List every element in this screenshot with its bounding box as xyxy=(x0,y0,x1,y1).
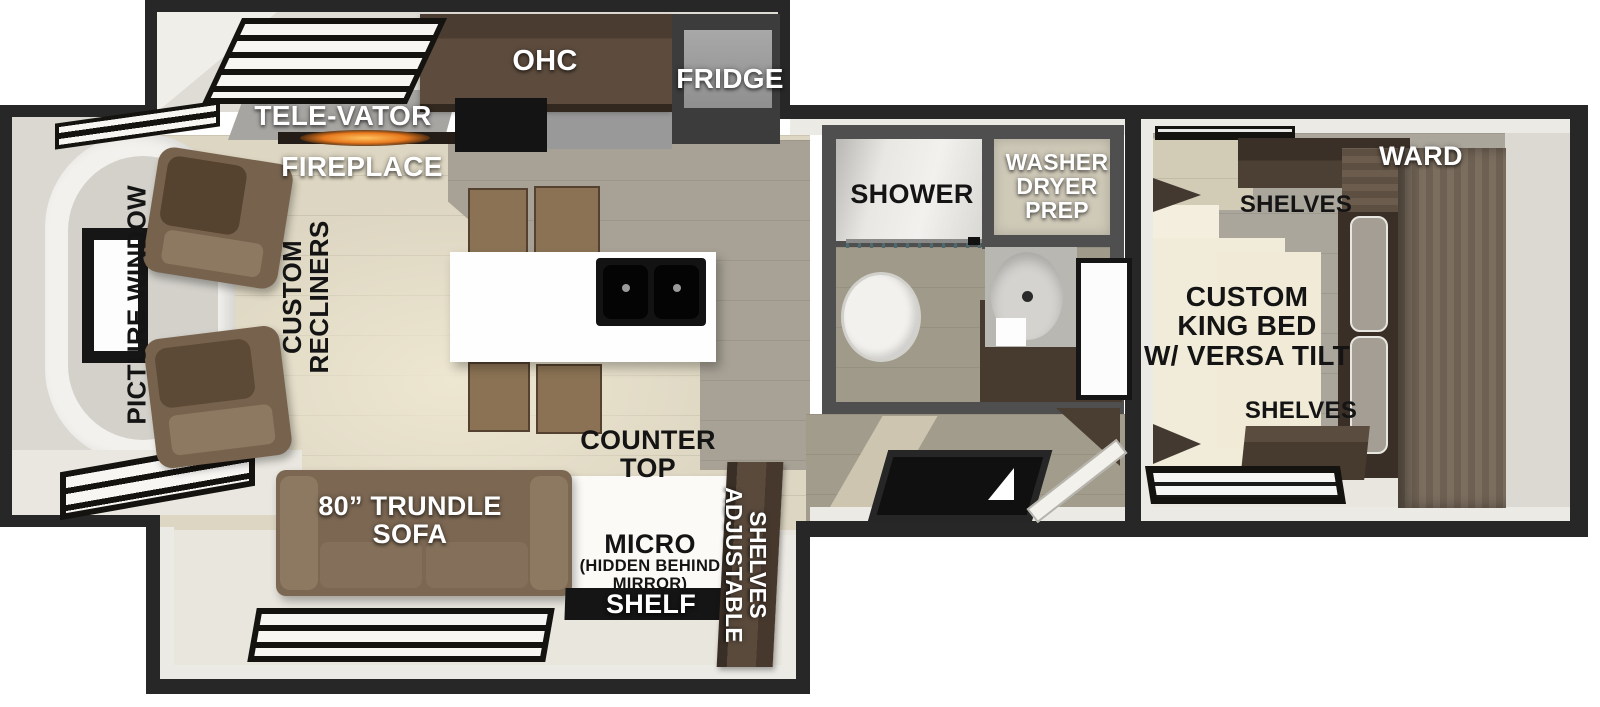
island-stool-1 xyxy=(468,188,528,256)
ohc-label: OHC xyxy=(455,46,635,76)
wardrobe-column xyxy=(1398,148,1506,508)
entry-step-well xyxy=(868,450,1053,522)
picture-window-label: PICTURE WINDOW xyxy=(123,193,150,425)
slideout-wall-top xyxy=(145,0,790,12)
king-bed-label: CUSTOMKING BEDW/ VERSA TILT xyxy=(1130,282,1364,370)
micro-label: MICRO (HIDDEN BEHIND MIRROR) xyxy=(560,530,740,593)
ward-label: WARD xyxy=(1346,142,1496,170)
shower-glass-hooks xyxy=(846,243,982,248)
recliner-bottom-seat xyxy=(168,404,276,456)
island-stool-3 xyxy=(468,362,530,432)
vanity-sink-drain xyxy=(1022,291,1033,302)
living-wall-right-lower xyxy=(796,521,810,693)
shelf-label: SHELF xyxy=(565,590,737,618)
washer-room-wall-bottom xyxy=(982,235,1124,247)
slideout-wall-left xyxy=(145,0,157,117)
bathroom-mirror xyxy=(1076,258,1132,400)
vanity-soap-box xyxy=(996,318,1026,346)
sink-faucet-left xyxy=(622,284,630,292)
shower-door-handle xyxy=(968,237,980,245)
living-wall-right-lower-lining xyxy=(782,535,796,665)
floorplan-canvas: OHC FRIDGE TELE-VATOR FIREPLACE PICTURE … xyxy=(0,0,1600,707)
living-window-bottom-slats xyxy=(254,614,547,656)
bedroom-window-top-slats xyxy=(1158,129,1292,137)
recliner-top-seat xyxy=(160,229,264,278)
bedroom-window-bottom-slats xyxy=(1153,473,1338,497)
custom-recliners-label: CUSTOMRECLINERS xyxy=(279,177,337,417)
counter-top-label: COUNTERTOP xyxy=(558,426,738,483)
recliner-bottom xyxy=(143,324,294,470)
main-wall-top-right xyxy=(778,105,1588,119)
kitchen-window xyxy=(202,18,447,104)
shower-label: SHOWER xyxy=(832,180,992,208)
main-wall-bottom-right xyxy=(810,521,1588,537)
island-stool-4 xyxy=(536,364,602,434)
adjustable-shelves-label-line2: SHELVES xyxy=(746,469,770,661)
frontcap-wall-left xyxy=(0,105,12,527)
recliner-top-back-cushion xyxy=(158,155,248,237)
living-wall-left-lower xyxy=(146,513,160,694)
fireplace-flame xyxy=(300,130,430,146)
fridge-label: FRIDGE xyxy=(650,64,810,93)
sink-faucet-right xyxy=(673,284,681,292)
living-wall-bottom xyxy=(146,679,810,694)
range-cooktop xyxy=(455,98,547,152)
shelves-bottom-label: SHELVES xyxy=(1221,398,1381,423)
sink-basin-right xyxy=(654,265,699,319)
toilet xyxy=(841,272,921,362)
sink-basin-left xyxy=(603,265,648,319)
shelves-top-label: SHELVES xyxy=(1216,192,1376,217)
trundle-sofa-label: 80” TRUNDLESOFA xyxy=(290,492,530,549)
living-wall-bottom-lining xyxy=(160,665,796,679)
washer-dryer-prep-label: WASHERDRYERPREP xyxy=(997,150,1117,222)
televator-label: TELE-VATOR xyxy=(228,101,458,130)
kitchen-window-slats xyxy=(211,24,439,98)
kitchen-floor-right xyxy=(700,140,810,470)
recliner-bottom-back-cushion xyxy=(154,338,257,409)
bedroom-window-bottom xyxy=(1145,466,1346,504)
living-window-bottom xyxy=(247,608,555,662)
living-wall-left-lower-lining xyxy=(160,527,174,665)
kitchen-sink xyxy=(596,258,706,326)
bedroom-wall-right-lining xyxy=(1505,133,1570,507)
island-stool-2 xyxy=(534,186,600,258)
bedroom-wall-right xyxy=(1570,105,1588,537)
adjustable-shelves-label-line1: ADJUSTABLE xyxy=(722,469,746,661)
